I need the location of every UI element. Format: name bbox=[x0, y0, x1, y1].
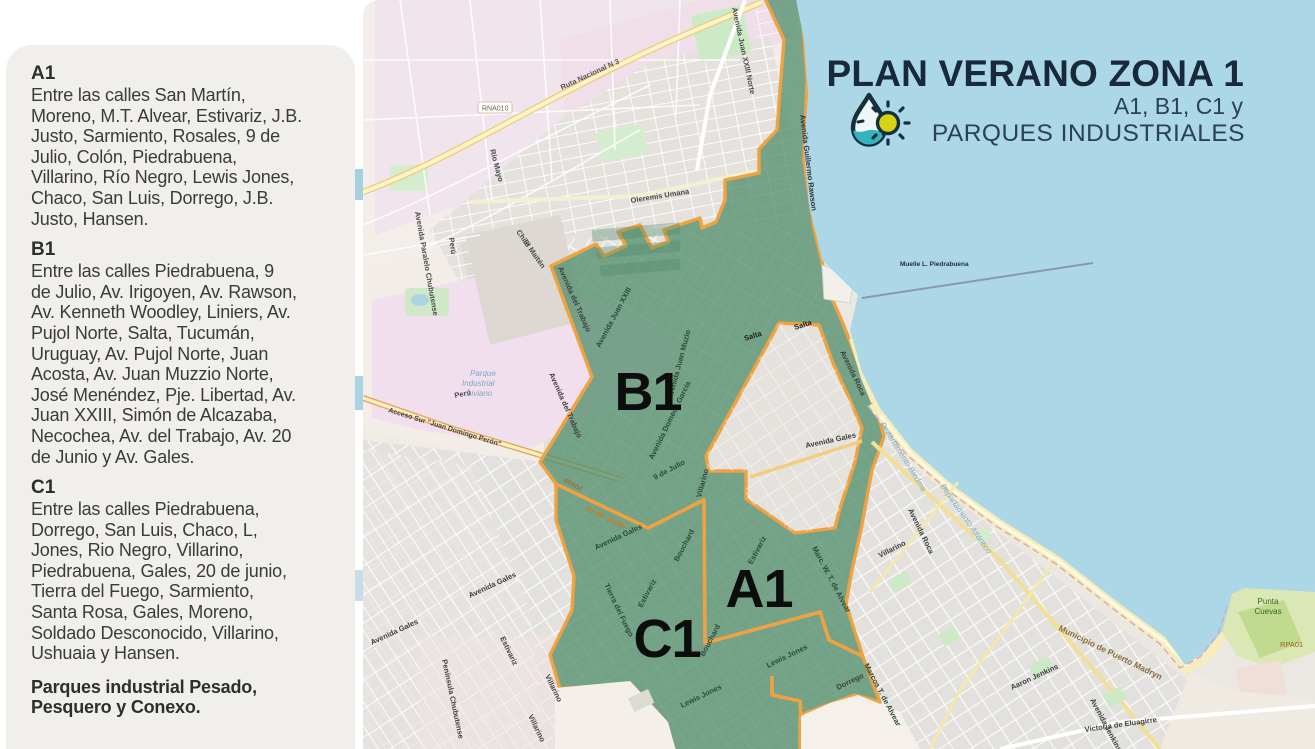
svg-text:Muelle L. Piedrabuena: Muelle L. Piedrabuena bbox=[900, 261, 969, 268]
svg-text:Parque: Parque bbox=[470, 369, 496, 378]
svg-text:Liviano: Liviano bbox=[467, 389, 493, 398]
svg-text:Punta: Punta bbox=[1258, 597, 1279, 606]
svg-text:A1: A1 bbox=[725, 559, 792, 619]
svg-text:B1: B1 bbox=[614, 362, 681, 422]
svg-text:RNA010: RNA010 bbox=[482, 106, 509, 113]
svg-text:A1, B1, C1 y: A1, B1, C1 y bbox=[1114, 93, 1244, 119]
svg-text:C1: C1 bbox=[633, 609, 700, 669]
svg-text:RPA01: RPA01 bbox=[1280, 640, 1303, 649]
svg-text:PLAN VERANO ZONA 1: PLAN VERANO ZONA 1 bbox=[827, 53, 1244, 94]
svg-text:PARQUES INDUSTRIALES: PARQUES INDUSTRIALES bbox=[932, 120, 1245, 147]
svg-text:Industrial: Industrial bbox=[462, 379, 495, 388]
svg-text:Cuevas: Cuevas bbox=[1254, 607, 1281, 616]
